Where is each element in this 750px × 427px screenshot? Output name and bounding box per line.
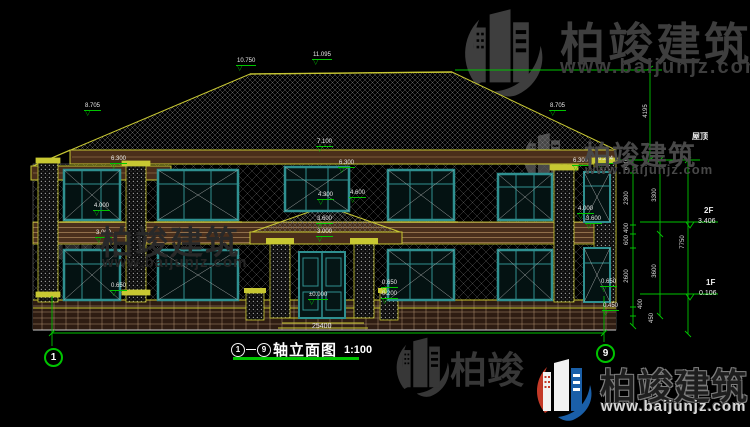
level-porch-beam: 3.000 (316, 229, 333, 237)
dim-total-width: 25400 (312, 323, 331, 330)
dim-mid-1: 3300 (652, 175, 658, 215)
floor2-label: 2F (704, 206, 713, 215)
level-eave-left: 6.300 (110, 156, 127, 164)
title-underline (233, 357, 359, 360)
level-eave-center: 7.100 (316, 139, 333, 147)
title-axis-from: 1 (231, 343, 245, 357)
level-sill2-right: 4.600 (349, 190, 366, 198)
level-porch-roof: 3.600 (316, 216, 333, 224)
floor2-level: 3.406 (698, 218, 716, 225)
watermark-url-top: www.baijunjz.com (560, 56, 750, 79)
watermark-logo-bottom (397, 338, 449, 397)
level-sill2-left: 4.300 (317, 192, 334, 200)
dim-mid-2: 3600 (652, 251, 658, 291)
level-planter-right-bottom: 0.200 (381, 291, 398, 299)
entry-door (299, 252, 345, 318)
title-axis-to: 9 (257, 343, 271, 357)
watermark-logo-color (537, 359, 592, 421)
level-band-top-left: 4.000 (93, 203, 110, 211)
floor1-label: 1F (706, 278, 715, 287)
dim-inner-4: 600 (624, 220, 630, 260)
watermark-brand-bottom-partial: 柏竣 (450, 340, 524, 394)
watermark-url-right: www.baijunjz.com (585, 162, 713, 177)
level-band-top-right: 4.000 (577, 206, 594, 214)
level-ridge-left: 10.750 (236, 58, 256, 66)
level-planter-right-top: 0.650 (381, 280, 398, 288)
level-roof-break-right: 8.705 (549, 103, 566, 111)
cad-elevation-screenshot: 10.750 11.095 8.705 8.705 7.100 6.300 6.… (0, 0, 750, 427)
dim-total-right: 7750 (680, 222, 686, 262)
title-scale: 1:100 (344, 344, 372, 356)
level-band-bottom-right: 3.600 (585, 216, 602, 224)
level-edge-upper: 0.650 (600, 279, 617, 287)
dim-inner-6: 400 (638, 284, 644, 324)
watermark-url-corner: www.baijunjz.com (601, 398, 746, 415)
dim-inner-7: 450 (649, 298, 655, 338)
level-ridge-main: 11.095 (312, 52, 332, 60)
watermark-url-left: www.baijunjz.com (102, 254, 247, 271)
level-edge-lower: 0.450 (602, 303, 619, 311)
dim-inner-5: 2600 (624, 256, 630, 296)
dim-roof-height: 4195 (643, 91, 649, 131)
level-ground: ±0.000 (308, 292, 328, 300)
title-dash: — (246, 344, 256, 355)
level-planter-left: 0.650 (110, 283, 127, 291)
axis-bubble-1: 1 (44, 348, 63, 367)
level-eave-mid: 6.300 (338, 160, 355, 168)
level-roof-break-left: 8.705 (84, 103, 101, 111)
floor1-level: 0.106 (699, 290, 717, 297)
